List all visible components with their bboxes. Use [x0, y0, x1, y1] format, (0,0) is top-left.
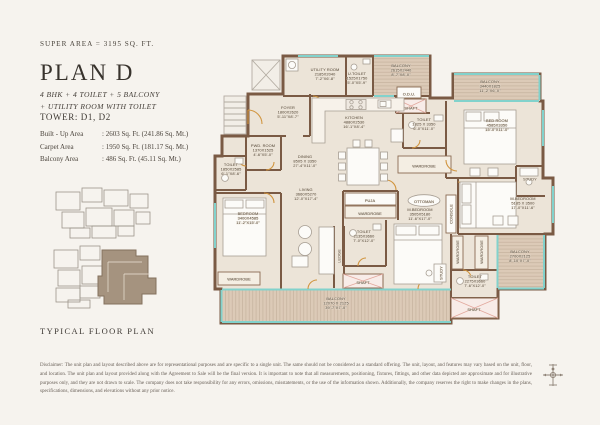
room-label: M.BEDROOM3505X518011'-6"X17'-0" [407, 207, 432, 221]
room-label: U.TOILET1525X17505'-0"X5'-9" [347, 71, 369, 85]
area-label: Built - Up Area [40, 130, 102, 138]
area-value: : 486 Sq. Ft. (45.11 Sq. Mt.) [102, 155, 181, 163]
key-plan [46, 184, 168, 320]
room-label: BALCONY12070 X 212539'-7"X7'-0" [323, 296, 348, 310]
room-label: STUDY [438, 266, 443, 280]
area-value: : 1950 Sq. Ft. (181.17 Sq. Mt.) [102, 143, 188, 151]
room-label: SHAFT [356, 280, 370, 285]
brochure-page: SUPER AREA = 3195 SQ. FT. PLAN D 4 BHK +… [0, 0, 600, 425]
key-plan-caption: TYPICAL FLOOR PLAN [40, 326, 155, 336]
area-value: : 2603 Sq. Ft. (241.86 Sq. Mt.) [102, 130, 188, 138]
tower-label: TOWER: D1, D2 [40, 112, 111, 122]
room-label: O.D.U. [403, 91, 416, 96]
room-label: STUDY [523, 176, 537, 181]
super-area-label: SUPER AREA = 3195 SQ. FT. [40, 40, 154, 48]
room-label: BALCONY3440X182511'-2"X6'-0" [479, 79, 501, 93]
area-row: Built - Up Area : 2603 Sq. Ft. (241.86 S… [40, 130, 188, 138]
room-label: WARDROBE [455, 240, 460, 264]
room-label: PWD. ROOM1370X15254'-6"X5'-0" [251, 143, 275, 157]
room-label: WARDROBE [479, 240, 484, 264]
room-label: SHAFT [404, 105, 418, 110]
room-label: WARDROBE [412, 163, 436, 168]
room-label: WARDROBE [227, 276, 251, 281]
room-label: BED ROOM4585X335015'-0"X11'-0" [485, 118, 509, 132]
key-plan-highlighted-unit [98, 250, 156, 304]
room-label: LEDGE [336, 249, 341, 263]
area-table: Built - Up Area : 2603 Sq. Ft. (241.86 S… [40, 130, 188, 168]
floor-plan: UTILITY ROOM2185X20407'-2"X6'-8"U.TOILET… [208, 48, 588, 334]
plan-subtitle: 4 BHK + 4 TOILET + 5 BALCONY + UTILITY R… [40, 89, 160, 113]
area-label: Balcony Area [40, 155, 102, 163]
room-label: BEDROOM3400X458511'-2"X15'-0" [236, 211, 260, 225]
plan-subtitle-line1: 4 BHK + 4 TOILET + 5 BALCONY [40, 89, 160, 101]
room-label: OTTOMAN [414, 199, 434, 204]
room-label: SHAFT [467, 307, 481, 312]
area-label: Carpet Area [40, 143, 102, 151]
room-label: CONSOLE [448, 204, 453, 224]
room-label: PUJA [365, 198, 376, 203]
room-label: BALCONY2700X21258'-10"X7'-0" [509, 249, 531, 263]
area-row: Carpet Area : 1950 Sq. Ft. (181.17 Sq. M… [40, 143, 188, 151]
room-label: KITCHEN4880X253016'-1"X8'-4" [343, 115, 365, 129]
room-label: M.BEDROOM5185 X 350017'-0"X11'-6" [510, 196, 535, 210]
disclaimer-text: Disclaimer: The unit plan and layout des… [40, 362, 532, 397]
room-label: BALCONY2615X24408'-7"X8'-0" [391, 63, 413, 77]
plan-title: PLAN D [40, 60, 134, 86]
compass-icon [540, 360, 566, 390]
area-row: Balcony Area : 486 Sq. Ft. (45.11 Sq. Mt… [40, 155, 188, 163]
room-label: WARDROBE [358, 211, 382, 216]
